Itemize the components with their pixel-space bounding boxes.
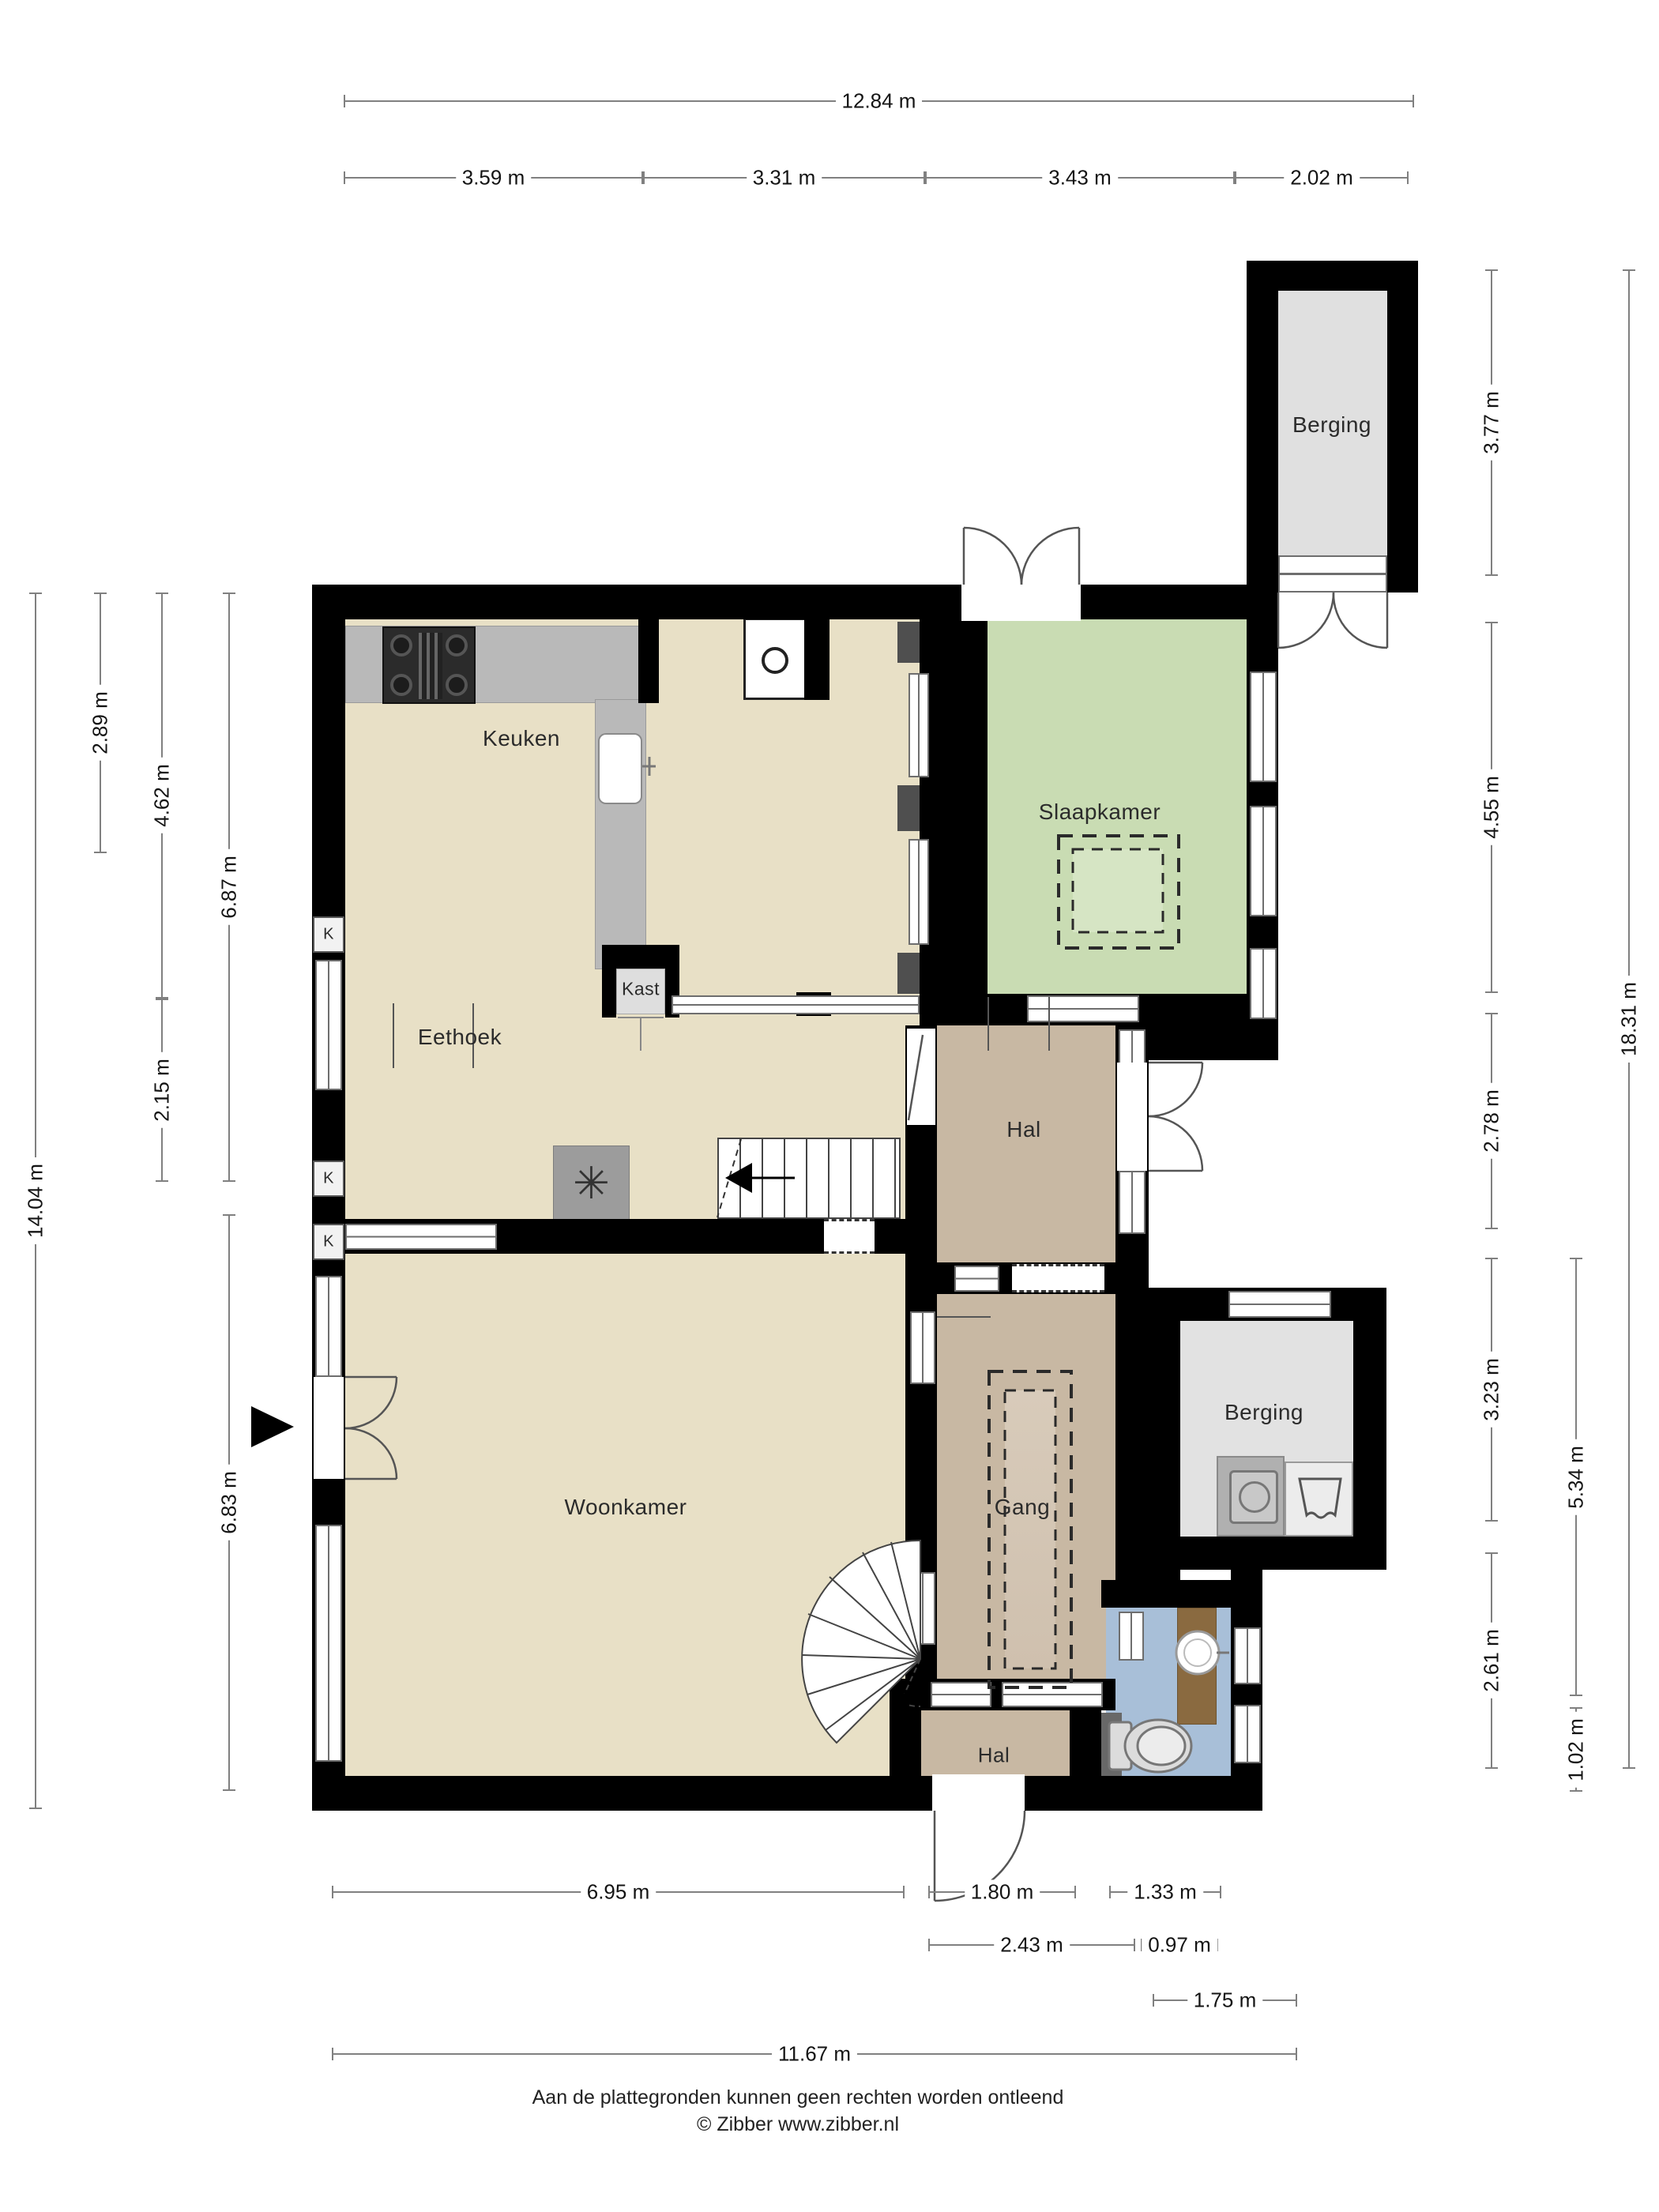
dimension-label: 6.87 m bbox=[217, 849, 242, 925]
dimension-bottom-5: 1.75 m bbox=[1153, 1988, 1297, 2012]
label-hal-small: Hal bbox=[978, 1744, 1010, 1768]
dimension-left-4: 6.87 m bbox=[217, 592, 241, 1182]
footer-disclaimer: Aan de plattegronden kunnen geen rechten… bbox=[0, 2084, 1596, 2111]
dimension-top-2: 3.31 m bbox=[643, 166, 925, 190]
dimension-bottom-1: 1.80 m bbox=[928, 1880, 1076, 1904]
straight-stairs-detail bbox=[717, 1139, 795, 1217]
dimension-right-7: 18.31 m bbox=[1617, 269, 1641, 1769]
dimension-top-0: 12.84 m bbox=[344, 89, 1414, 113]
kast-sill bbox=[618, 1018, 664, 1051]
label-slaapkamer: Slaapkamer bbox=[1039, 799, 1161, 825]
dimension-label: 2.15 m bbox=[150, 1052, 175, 1128]
dimension-label: 3.23 m bbox=[1480, 1352, 1504, 1428]
front-door-double bbox=[1149, 1063, 1202, 1171]
dimension-label: 2.78 m bbox=[1480, 1083, 1504, 1159]
annex-double-doors bbox=[1278, 592, 1387, 648]
dimension-top-1: 3.59 m bbox=[344, 166, 643, 190]
dimension-label: 3.31 m bbox=[747, 166, 822, 190]
dimension-right-0: 3.77 m bbox=[1480, 269, 1503, 576]
dimension-label: 2.61 m bbox=[1480, 1623, 1504, 1698]
dimension-label: 12.84 m bbox=[836, 89, 923, 114]
dimension-label: 3.77 m bbox=[1480, 385, 1504, 461]
slaapkamer-top-doors bbox=[964, 528, 1079, 585]
dimension-right-1: 4.55 m bbox=[1480, 622, 1503, 993]
footer: Aan de plattegronden kunnen geen rechten… bbox=[0, 2084, 1596, 2138]
spiral-stairs bbox=[802, 1540, 920, 1743]
footer-copyright: © Zibber www.zibber.nl bbox=[0, 2111, 1596, 2138]
label-k2: K bbox=[323, 1170, 334, 1188]
dimension-top-3: 3.43 m bbox=[925, 166, 1235, 190]
dimension-label: 14.04 m bbox=[24, 1157, 48, 1244]
dimension-right-3: 3.23 m bbox=[1480, 1258, 1503, 1522]
entrance-arrow-icon bbox=[251, 1406, 299, 1447]
slaapkamer-skylight-dashed bbox=[1059, 836, 1179, 948]
dimension-label: 2.89 m bbox=[88, 685, 113, 761]
label-berging-bottom: Berging bbox=[1224, 1400, 1303, 1425]
dimension-label: 4.55 m bbox=[1480, 769, 1504, 845]
dimension-label: 18.31 m bbox=[1617, 976, 1642, 1063]
label-k1: K bbox=[323, 926, 334, 944]
dimension-label: 5.34 m bbox=[1564, 1439, 1589, 1515]
dimension-left-0: 14.04 m bbox=[24, 592, 47, 1809]
dimension-left-1: 2.89 m bbox=[88, 592, 112, 853]
dimension-label: 4.62 m bbox=[150, 758, 175, 833]
toilet-fixture bbox=[1109, 1720, 1191, 1772]
dimension-bottom-3: 2.43 m bbox=[928, 1933, 1135, 1957]
label-woonkamer: Woonkamer bbox=[565, 1495, 687, 1520]
dimension-bottom-4: 0.97 m bbox=[1141, 1933, 1218, 1957]
dimension-left-5: 6.83 m bbox=[217, 1214, 241, 1791]
dimension-label: 3.59 m bbox=[456, 166, 532, 190]
dimension-label: 6.83 m bbox=[217, 1465, 242, 1540]
label-keuken: Keuken bbox=[483, 726, 560, 751]
vanity-basin bbox=[1176, 1631, 1229, 1674]
utility-sink-icon bbox=[1300, 1479, 1341, 1518]
dimension-bottom-2: 1.33 m bbox=[1109, 1880, 1221, 1904]
dimension-label: 1.80 m bbox=[965, 1880, 1040, 1905]
dimension-label: 3.43 m bbox=[1042, 166, 1118, 190]
dimension-left-2: 4.62 m bbox=[150, 592, 174, 999]
dimension-bottom-0: 6.95 m bbox=[332, 1880, 905, 1904]
label-gang: Gang bbox=[995, 1495, 1051, 1520]
dimension-label: 2.02 m bbox=[1284, 166, 1360, 190]
dimension-left-3: 2.15 m bbox=[150, 999, 174, 1182]
dimension-label: 1.33 m bbox=[1127, 1880, 1203, 1905]
dimension-top-4: 2.02 m bbox=[1235, 166, 1409, 190]
dimension-label: 6.95 m bbox=[581, 1880, 656, 1905]
label-k3: K bbox=[323, 1233, 334, 1251]
dimension-right-6: 1.02 m bbox=[1564, 1707, 1588, 1792]
label-hal-mid: Hal bbox=[1006, 1117, 1041, 1142]
kitchen-sink-faucet bbox=[642, 757, 656, 776]
dimension-label: 11.67 m bbox=[772, 2042, 857, 2067]
dimension-right-2: 2.78 m bbox=[1480, 1013, 1503, 1229]
eethoek-hal-door-leaf bbox=[908, 1035, 923, 1120]
floorplan-canvas: ✳ bbox=[0, 0, 1659, 2212]
dimension-label: 2.43 m bbox=[994, 1933, 1070, 1958]
woonkamer-left-doors bbox=[345, 1377, 397, 1479]
label-kast: Kast bbox=[622, 979, 660, 1000]
dimension-label: 1.02 m bbox=[1564, 1712, 1589, 1788]
gang-void-dashed bbox=[989, 1371, 1071, 1687]
dimension-right-4: 2.61 m bbox=[1480, 1552, 1503, 1769]
dimension-label: 1.75 m bbox=[1187, 1988, 1263, 2013]
dimension-label: 0.97 m bbox=[1142, 1933, 1217, 1958]
label-eethoek: Eethoek bbox=[418, 1025, 502, 1050]
dimension-bottom-6: 11.67 m bbox=[332, 2042, 1297, 2066]
dimension-right-5: 5.34 m bbox=[1564, 1258, 1588, 1696]
label-berging-top: Berging bbox=[1292, 412, 1371, 438]
